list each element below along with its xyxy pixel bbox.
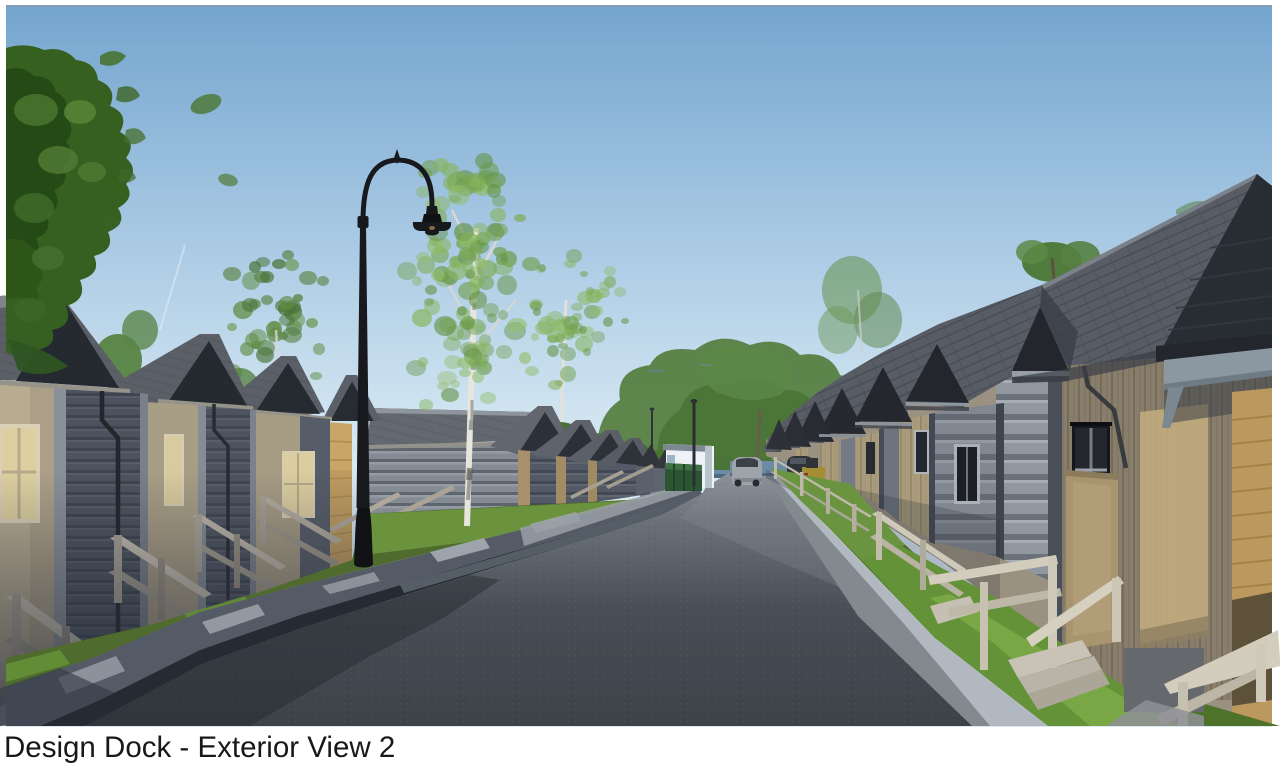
svg-text:Design Dock - Exterior View 2: Design Dock - Exterior View 2 <box>4 731 395 764</box>
